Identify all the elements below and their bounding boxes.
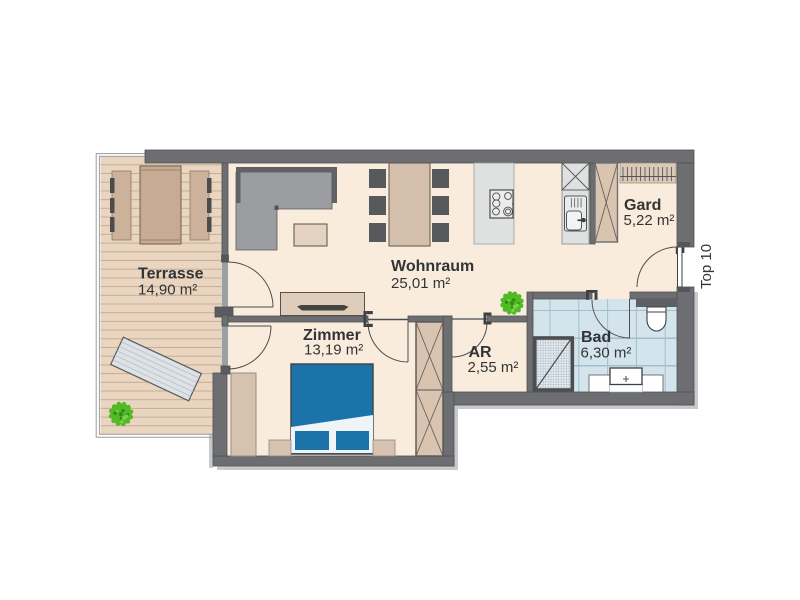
svg-text:14,90 m²: 14,90 m² xyxy=(138,282,197,299)
svg-text:13,19 m²: 13,19 m² xyxy=(304,342,363,359)
svg-text:25,01 m²: 25,01 m² xyxy=(391,275,450,292)
svg-text:Top 10: Top 10 xyxy=(698,244,715,289)
svg-text:Wohnraum: Wohnraum xyxy=(391,258,474,275)
svg-text:2,55 m²: 2,55 m² xyxy=(468,359,519,376)
svg-text:5,22 m²: 5,22 m² xyxy=(624,212,675,229)
svg-text:6,30 m²: 6,30 m² xyxy=(581,345,632,362)
svg-text:Bad: Bad xyxy=(581,329,611,346)
svg-text:Terrasse: Terrasse xyxy=(138,266,204,283)
